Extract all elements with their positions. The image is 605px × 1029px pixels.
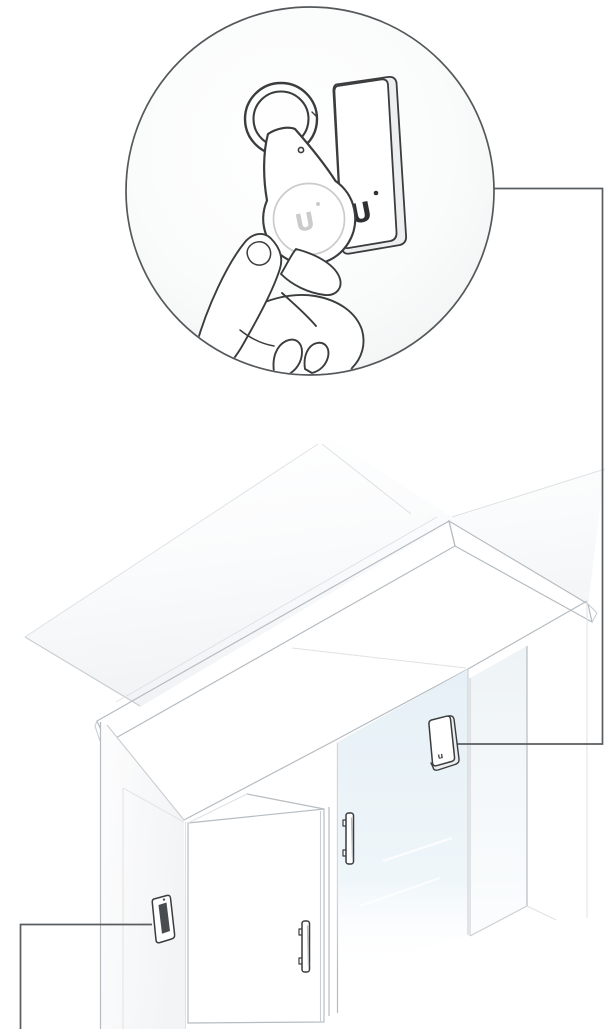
mullion-reader bbox=[152, 895, 174, 942]
open-door-glass bbox=[188, 809, 324, 1023]
side-panel-glass bbox=[470, 646, 527, 936]
open-door-top-rail-inner bbox=[188, 794, 247, 823]
right-wall bbox=[527, 601, 587, 920]
fingernail bbox=[247, 242, 270, 265]
closed-door-glass bbox=[338, 669, 469, 972]
callout-line-inset-to-glass-reader bbox=[457, 189, 603, 745]
side-glass-panel bbox=[470, 646, 527, 936]
magnified-inset: U U bbox=[126, 7, 494, 398]
reader-logo-dot bbox=[374, 191, 379, 196]
closed-glass-door bbox=[338, 669, 469, 972]
fascia-end-cap bbox=[95, 721, 100, 741]
mullion-reader-led bbox=[163, 898, 165, 900]
soffit-back-edge bbox=[292, 648, 466, 668]
open-door-top-rail bbox=[247, 794, 324, 809]
fascia-wing-tip bbox=[588, 604, 597, 622]
building-illustration bbox=[25, 438, 605, 1029]
door-handle-left bbox=[299, 921, 310, 972]
open-glass-door bbox=[186, 794, 325, 1029]
left-wall bbox=[101, 722, 187, 1029]
installation-diagram: u U bbox=[0, 0, 605, 1029]
illustration-canvas: u U bbox=[0, 0, 605, 1029]
open-door-reflection bbox=[212, 902, 284, 982]
right-wall-bottom-edge bbox=[527, 906, 556, 920]
glass-mounted-reader: u bbox=[429, 716, 459, 770]
keyfob-hole bbox=[298, 147, 303, 152]
keyfob-logo-dot bbox=[316, 202, 320, 206]
